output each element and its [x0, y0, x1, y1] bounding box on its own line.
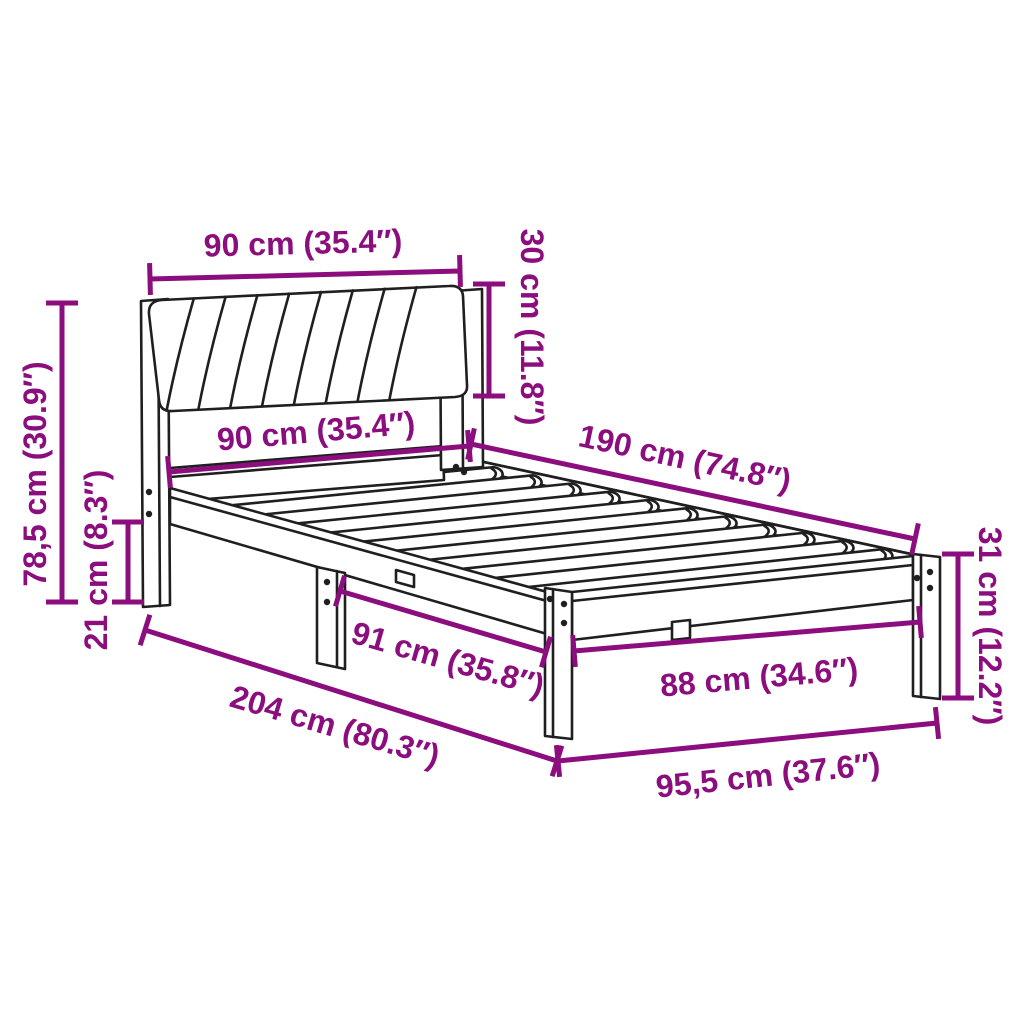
dim-label-overall-height: 78,5 cm (30.9″): [17, 361, 53, 586]
screw-hole: [927, 585, 933, 591]
screw-hole: [561, 601, 567, 607]
screw-hole: [146, 489, 152, 495]
dim-label-overall-width: 95,5 cm (37.6″): [654, 745, 882, 804]
dim-label-mattress-length: 190 cm (74.8″): [575, 417, 794, 498]
diagram-svg: 90 cm (35.4″) 30 cm (11.8″) 78,5 cm (30.…: [0, 0, 1024, 1024]
screw-hole: [453, 464, 459, 470]
dim-label-cushion-height: 30 cm (11.8″): [514, 229, 550, 426]
headboard-cushion: [149, 286, 467, 411]
dimension-line: [112, 522, 144, 602]
bed-dimension-diagram: 90 cm (35.4″) 30 cm (11.8″) 78,5 cm (30.…: [0, 0, 1024, 1024]
foot-rail-bracket: [672, 620, 690, 640]
dim-label-leg-spacing: 91 cm (35.8″): [348, 614, 549, 703]
screw-hole: [927, 569, 933, 575]
screw-hole: [146, 511, 152, 517]
dim-label-footend-inner-width: 88 cm (34.6″): [659, 650, 860, 703]
screw-hole: [547, 596, 553, 602]
dim-label-headboard-width: 90 cm (35.4″): [203, 222, 402, 263]
screw-hole: [324, 599, 330, 605]
screw-hole: [914, 575, 920, 581]
screw-hole: [324, 579, 330, 585]
leg-foot-left: [545, 588, 572, 739]
dim-label-footend-height: 31 cm (12.2″): [972, 527, 1008, 726]
screw-hole: [561, 620, 567, 626]
dim-label-underbed-clearance: 21 cm (8.3″): [78, 470, 114, 651]
screw-hole: [461, 469, 467, 475]
dimension-line: [942, 554, 974, 698]
